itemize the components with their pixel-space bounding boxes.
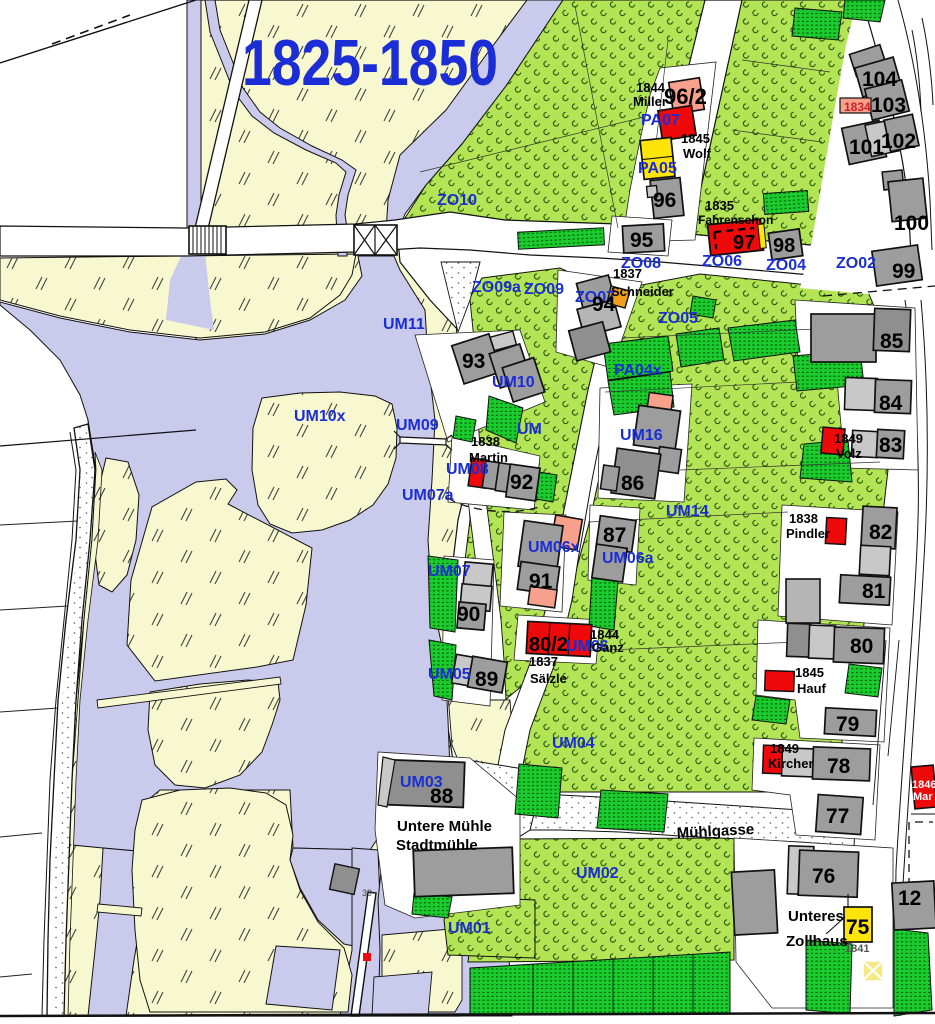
svg-text:UM04: UM04: [552, 735, 595, 752]
svg-text:UM: UM: [517, 421, 542, 438]
svg-text:79: 79: [836, 713, 859, 736]
svg-text:93: 93: [462, 350, 485, 373]
svg-text:95: 95: [630, 229, 654, 252]
svg-text:Wolf: Wolf: [683, 146, 712, 161]
svg-text:Stadtmühle: Stadtmühle: [396, 837, 478, 854]
svg-text:Miller: Miller: [633, 94, 667, 109]
svg-text:ZO02: ZO02: [836, 255, 876, 272]
svg-text:UM11: UM11: [383, 316, 425, 333]
svg-text:UM05: UM05: [428, 666, 471, 683]
svg-text:Martin: Martin: [469, 450, 508, 465]
svg-text:94: 94: [592, 293, 616, 316]
svg-text:Kircher: Kircher: [768, 756, 814, 771]
svg-text:84: 84: [879, 392, 903, 415]
svg-text:1825-1850: 1825-1850: [242, 26, 498, 99]
svg-text:Ganz: Ganz: [592, 640, 624, 655]
svg-text:1844: 1844: [636, 80, 666, 95]
svg-text:Volz: Volz: [836, 446, 862, 461]
svg-text:81: 81: [862, 580, 886, 603]
svg-text:12: 12: [898, 887, 921, 910]
svg-text:1841: 1841: [845, 943, 869, 955]
svg-text:1837: 1837: [613, 266, 642, 281]
svg-text:89: 89: [475, 668, 498, 691]
svg-text:UM06a: UM06a: [602, 550, 654, 567]
svg-text:Pindler: Pindler: [786, 526, 830, 541]
svg-text:100: 100: [894, 212, 929, 235]
svg-text:PA05: PA05: [638, 160, 677, 177]
svg-text:ZO06: ZO06: [702, 253, 742, 270]
svg-text:77: 77: [826, 805, 849, 828]
svg-text:UM16: UM16: [620, 427, 663, 444]
svg-text:Hauf: Hauf: [797, 681, 827, 696]
svg-text:Zollhaus: Zollhaus: [786, 933, 848, 950]
svg-text:102: 102: [881, 130, 916, 153]
svg-text:UM14: UM14: [666, 503, 709, 520]
svg-text:82: 82: [869, 521, 892, 544]
svg-text:Unteres: Unteres: [788, 908, 844, 925]
svg-text:1849: 1849: [834, 431, 863, 446]
svg-text:80/2: 80/2: [529, 634, 568, 656]
svg-text:91: 91: [529, 570, 553, 593]
svg-text:Schneider: Schneider: [611, 284, 674, 299]
svg-text:Untere Mühle: Untere Mühle: [397, 818, 492, 835]
svg-text:101: 101: [849, 136, 884, 159]
svg-text:103: 103: [871, 94, 906, 117]
svg-text:1845: 1845: [681, 131, 710, 146]
svg-text:75: 75: [846, 916, 870, 939]
svg-text:PA07: PA07: [641, 112, 680, 129]
svg-text:ZO05: ZO05: [658, 310, 698, 327]
svg-text:99: 99: [892, 260, 915, 283]
svg-text:97: 97: [733, 232, 755, 254]
svg-text:39: 39: [362, 888, 372, 898]
svg-text:ZO09: ZO09: [524, 281, 564, 298]
svg-text:80: 80: [850, 635, 873, 658]
svg-text:1837: 1837: [529, 654, 558, 669]
svg-text:UM07a: UM07a: [402, 487, 454, 504]
svg-text:96/2: 96/2: [664, 84, 707, 109]
svg-text:76: 76: [812, 865, 835, 888]
svg-text:ZO09a: ZO09a: [472, 279, 521, 296]
svg-text:96: 96: [653, 189, 676, 212]
svg-text:85: 85: [880, 330, 904, 353]
svg-text:1835: 1835: [705, 198, 734, 213]
svg-text:UM06x: UM06x: [528, 539, 580, 556]
svg-text:1849: 1849: [770, 741, 799, 756]
svg-text:Mar: Mar: [913, 791, 933, 803]
svg-text:87: 87: [603, 524, 626, 547]
svg-text:90: 90: [457, 603, 480, 626]
svg-text:UM10: UM10: [492, 374, 535, 391]
svg-text:Sälzle: Sälzle: [530, 671, 567, 686]
svg-text:1838: 1838: [789, 511, 818, 526]
svg-text:92: 92: [510, 471, 533, 494]
svg-text:86: 86: [621, 472, 644, 495]
svg-text:98: 98: [773, 235, 795, 257]
svg-text:104: 104: [862, 68, 897, 91]
svg-text:PA04x: PA04x: [614, 362, 662, 379]
svg-text:83: 83: [879, 434, 902, 457]
svg-text:UM02: UM02: [576, 865, 619, 882]
svg-text:ZO04: ZO04: [766, 257, 806, 274]
svg-text:UM10x: UM10x: [294, 408, 346, 425]
svg-text:78: 78: [827, 755, 851, 778]
svg-text:1834: 1834: [844, 100, 871, 114]
svg-text:1846: 1846: [912, 779, 935, 791]
svg-text:88: 88: [430, 785, 454, 808]
svg-text:1838: 1838: [471, 434, 500, 449]
svg-text:UM09: UM09: [396, 417, 439, 434]
svg-text:UM01: UM01: [448, 920, 491, 937]
svg-text:ZO10: ZO10: [437, 192, 477, 209]
svg-text:Fahrenschon: Fahrenschon: [698, 213, 773, 227]
svg-text:1845: 1845: [795, 665, 824, 680]
svg-text:UM07: UM07: [428, 563, 471, 580]
